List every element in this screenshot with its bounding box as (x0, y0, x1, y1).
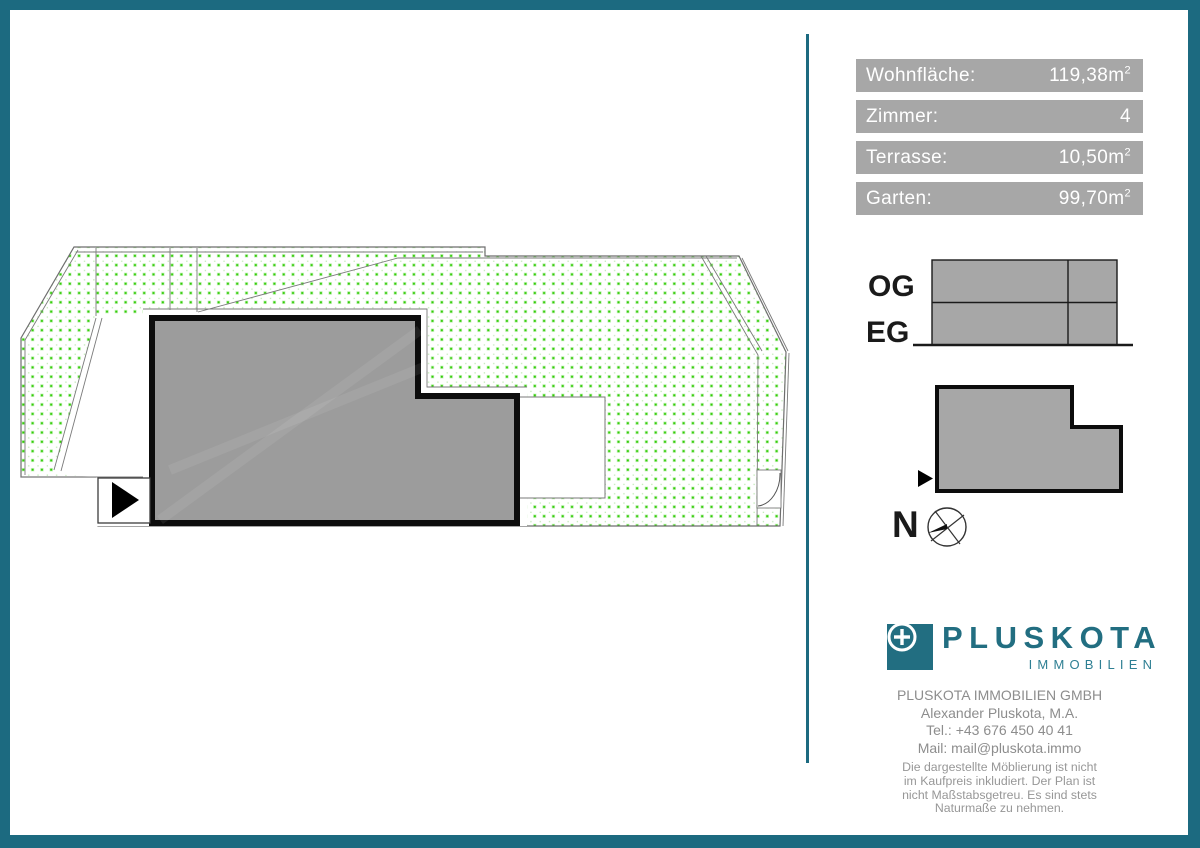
disclaimer-line: nicht Maßstabsgetreu. Es sind stets (866, 789, 1133, 803)
info-label: Wohnfläche: (866, 65, 976, 87)
contact-phone: Tel.: +43 676 450 40 41 (856, 722, 1143, 740)
info-row-rooms: Zimmer: 4 (856, 100, 1143, 133)
info-label: Garten: (866, 188, 932, 210)
info-label: Zimmer: (866, 106, 938, 128)
terrace-area (518, 397, 605, 498)
disclaimer-line: im Kaufpreis inkludiert. Der Plan ist (866, 775, 1133, 789)
disclaimer-line: Die dargestellte Möblierung ist nicht (866, 761, 1133, 775)
contact-company: PLUSKOTA IMMOBILIEN GMBH (856, 687, 1143, 705)
disclaimer-line: Naturmaße zu nehmen. (866, 802, 1133, 816)
compass-needle-icon (928, 524, 947, 533)
floor-diagram: OG EG (866, 260, 1133, 349)
property-info-panel: Wohnfläche: 119,38m2 Zimmer: 4 Terrasse:… (856, 59, 1143, 223)
contact-block: PLUSKOTA IMMOBILIEN GMBH Alexander Plusk… (856, 687, 1143, 757)
footprint-diagram (918, 387, 1121, 491)
company-logo: PLUSKOTA IMMOBILIEN (885, 621, 1162, 672)
logo-subtitle: IMMOBILIEN (942, 657, 1162, 672)
compass: N (892, 504, 966, 546)
logo-magnifier-plus-icon (885, 621, 935, 672)
contact-email: Mail: mail@pluskota.immo (856, 740, 1143, 758)
ground-floor-label: EG (866, 316, 909, 349)
info-label: Terrasse: (866, 147, 948, 169)
info-value: 99,70m2 (1059, 188, 1131, 210)
info-value: 10,50m2 (1059, 147, 1131, 169)
floorplan-page: OG EG N Wohnfläche: 119,38m2 Zimmer: 4 T… (0, 0, 1200, 848)
info-value: 119,38m2 (1049, 65, 1131, 87)
logo-text: PLUSKOTA IMMOBILIEN (942, 621, 1162, 672)
footprint-entrance-arrow-icon (918, 470, 933, 487)
info-row-living-area: Wohnfläche: 119,38m2 (856, 59, 1143, 92)
info-row-garden: Garten: 99,70m2 (856, 182, 1143, 215)
upper-floor-label: OG (868, 270, 915, 303)
info-row-terrace: Terrasse: 10,50m2 (856, 141, 1143, 174)
logo-name: PLUSKOTA (942, 621, 1162, 655)
info-value: 4 (1120, 106, 1131, 128)
north-label: N (892, 504, 919, 545)
footprint-shape (937, 387, 1121, 491)
compass-cross-line (931, 515, 964, 541)
vertical-divider (806, 34, 809, 763)
disclaimer-block: Die dargestellte Möblierung ist nicht im… (866, 761, 1133, 816)
contact-person: Alexander Pluskota, M.A. (856, 705, 1143, 723)
